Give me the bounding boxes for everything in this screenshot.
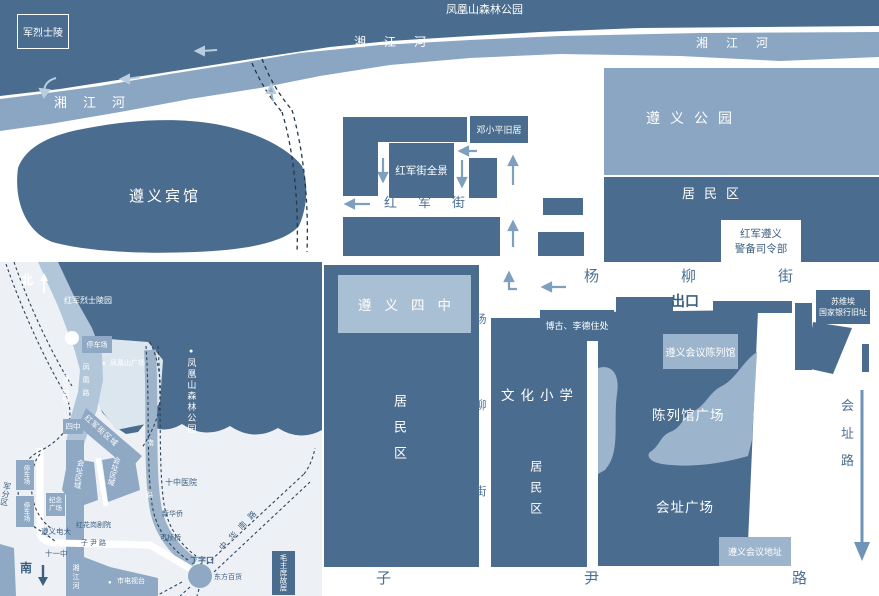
inset-fh-square-label: 凤凰山广场 (110, 360, 145, 368)
inset-memorial-square-box: 纪念 广场 (46, 493, 65, 516)
bogu-lide-residence-box: 博古、李德住处 (540, 310, 614, 341)
inset-memorial-line1: 纪念 (49, 497, 62, 504)
inset-parking-box-2: 停车场 (16, 496, 34, 527)
inset-forest-park-label: 凤凰山森林公园 (186, 358, 196, 435)
culture-school-block (491, 318, 587, 567)
inset-school4-label: 四中 (66, 421, 81, 432)
huizhi-road-arrow (854, 390, 870, 561)
inset-hotel-label: 遵义宾馆 (61, 375, 69, 403)
inset-parking-top-box: 停车场 (82, 336, 112, 353)
yangliu-street-h-char2: 柳 (681, 268, 696, 285)
inset-kezhen-bridge-label: 可桢桥 (160, 535, 181, 543)
deng-xiaoping-residence: 邓小平旧居 (470, 116, 528, 143)
residential-mid2-label: 居民区 (528, 460, 542, 523)
deng-residence-label: 邓小平旧居 (476, 123, 521, 136)
martyr-cemetery-label: 军烈士陵 (23, 24, 63, 39)
huizhi-road-char2: 址 (841, 427, 854, 442)
martyr-cemetery-box: 军烈士陵 (17, 14, 69, 49)
yangliu-street-v-char3: 街 (475, 486, 487, 499)
zunyi-hotel-area (17, 120, 306, 253)
inset-south-label: 南 (20, 562, 32, 576)
inset-martyr-park-label: 红军烈士陵园 (64, 296, 112, 305)
inset-fh-square-dot: ● (102, 361, 106, 368)
inset-road-char-lu: 路 (146, 492, 153, 500)
block-small-2 (538, 232, 584, 256)
wall-strip-small (862, 344, 869, 372)
river-label-1: 湘江河 (354, 36, 444, 50)
river-label-2: 湘江河 (696, 37, 786, 51)
hongjun-block-top (343, 117, 467, 142)
bogu-lide-label: 博古、李德住处 (545, 319, 608, 332)
ziyin-road-char3: 路 (792, 570, 807, 587)
inset-parking-top-label: 停车场 (87, 340, 108, 350)
huizhi-road-char3: 路 (841, 454, 854, 469)
hongjun-block-bottom (343, 217, 500, 256)
huizhi-road-char1: 会 (841, 399, 854, 414)
wall-strip-right (795, 303, 812, 370)
zunyi-tour-map: 邓小平旧居 红军街全景 遵义四中 军烈士陵 红军遵义 警备司令部 苏维埃 国家银… (0, 0, 879, 596)
hongjun-block-mid (469, 158, 497, 198)
hongjun-panorama-label: 红军街全景 (395, 163, 448, 178)
garrison-hq-line1: 红军遵义 (740, 228, 782, 240)
residential-mid-label: 居民区 (391, 394, 406, 472)
zunyi-no4-school-box: 遵义四中 (338, 275, 471, 333)
inset-tv-university-label: 遵义电大 (41, 528, 71, 537)
garrison-hq-box: 红军遵义 警备司令部 (721, 220, 801, 262)
ziyin-road-char2: 尹 (584, 570, 599, 587)
yangliu-street-v-char1: 杨 (475, 314, 487, 327)
inset-fenghuang-road-label: 凤凰路 (81, 363, 89, 402)
exit-wall-left (616, 297, 673, 312)
inset-map (0, 262, 322, 596)
inset-mao-residence-box: 毛主席故居 (272, 551, 295, 595)
inset-forest-park-dot: ● (189, 348, 193, 356)
inset-roundabout (188, 564, 212, 588)
zunyi-park-label: 遵义公园 (646, 110, 742, 126)
inset-north-label: 北 (21, 274, 33, 288)
river-label-3: 湘江河 (54, 96, 141, 111)
inset-ziyin-road-label: 子尹路 (81, 540, 108, 548)
inset-parking-box-1: 停车场 (16, 460, 34, 490)
zunyi-hotel-label: 遵义宾馆 (129, 188, 201, 205)
soviet-bank-line2: 国家银行旧址 (819, 308, 867, 317)
zunyi-no4-school-label: 遵义四中 (345, 294, 464, 314)
inset-tv-station-dot: ● (108, 580, 112, 587)
soviet-bank-box: 苏维埃 国家银行旧址 (816, 290, 870, 324)
inset-parking-label-1: 停车场 (20, 465, 30, 485)
hongjun-street-label: 红军街 (384, 196, 486, 211)
inset-dept-store-label: 东方百货 (214, 574, 242, 582)
meeting-site-label: 遵义会议地址 (728, 545, 782, 558)
wall-slanted (806, 322, 852, 374)
inset-dingzikou-label: 丁字口 (190, 556, 214, 565)
inset-theater-label: 红花岗剧院 (76, 522, 111, 530)
inset-corner-block (0, 544, 16, 596)
exit-wall-right (713, 301, 792, 313)
residential-right-label: 居民区 (682, 187, 748, 202)
site-plaza-label: 会址广场 (656, 500, 714, 516)
inset-tv-station-label: 市电视台 (117, 578, 145, 586)
ziyin-road-char1: 子 (376, 570, 391, 587)
inset-hospital-label: 十中医院 (165, 478, 197, 487)
inset-xinhua-label: 新华侨 (162, 511, 183, 519)
yangliu-street-h-char3: 街 (778, 268, 793, 285)
inset-parking-label-2: 停车场 (20, 502, 30, 522)
inset-mao-residence-label: 毛主席故居 (278, 554, 289, 592)
inset-monument-circle (65, 331, 79, 345)
garrison-hq-label: 红军遵义 警备司令部 (735, 226, 788, 256)
yangliu-street-v-char2: 柳 (475, 400, 487, 413)
exhibit-plaza-label: 陈列馆广场 (652, 408, 725, 424)
inset-school11-label: 十一中 (45, 550, 68, 559)
soviet-bank-label: 苏维埃 国家银行旧址 (819, 296, 867, 318)
garrison-hq-line2: 警备司令部 (735, 243, 788, 255)
culture-school-label: 文化小学 (501, 388, 579, 404)
yangliu-street-h-char1: 杨 (584, 268, 599, 285)
exhibition-hall-label: 遵义会议陈列馆 (666, 344, 736, 359)
inset-memorial-square-label: 纪念 广场 (49, 497, 62, 513)
meeting-site-box: 遵义会议地址 (719, 537, 791, 566)
exit-label: 出口 (671, 293, 699, 309)
soviet-bank-line1: 苏维埃 (831, 297, 855, 306)
hongjun-panorama-block: 红军街全景 (389, 143, 454, 198)
exhibition-hall-box: 遵义会议陈列馆 (663, 334, 738, 369)
inset-river-label: 湘江河 (71, 564, 79, 591)
inset-road-char-nan: 南 (147, 440, 154, 448)
block-small-1 (543, 198, 583, 215)
inset-school4-box: 四中 (63, 419, 83, 434)
park-top-label: 凤凰山森林公园 (446, 4, 523, 17)
inset-memorial-line2: 广场 (49, 505, 62, 512)
